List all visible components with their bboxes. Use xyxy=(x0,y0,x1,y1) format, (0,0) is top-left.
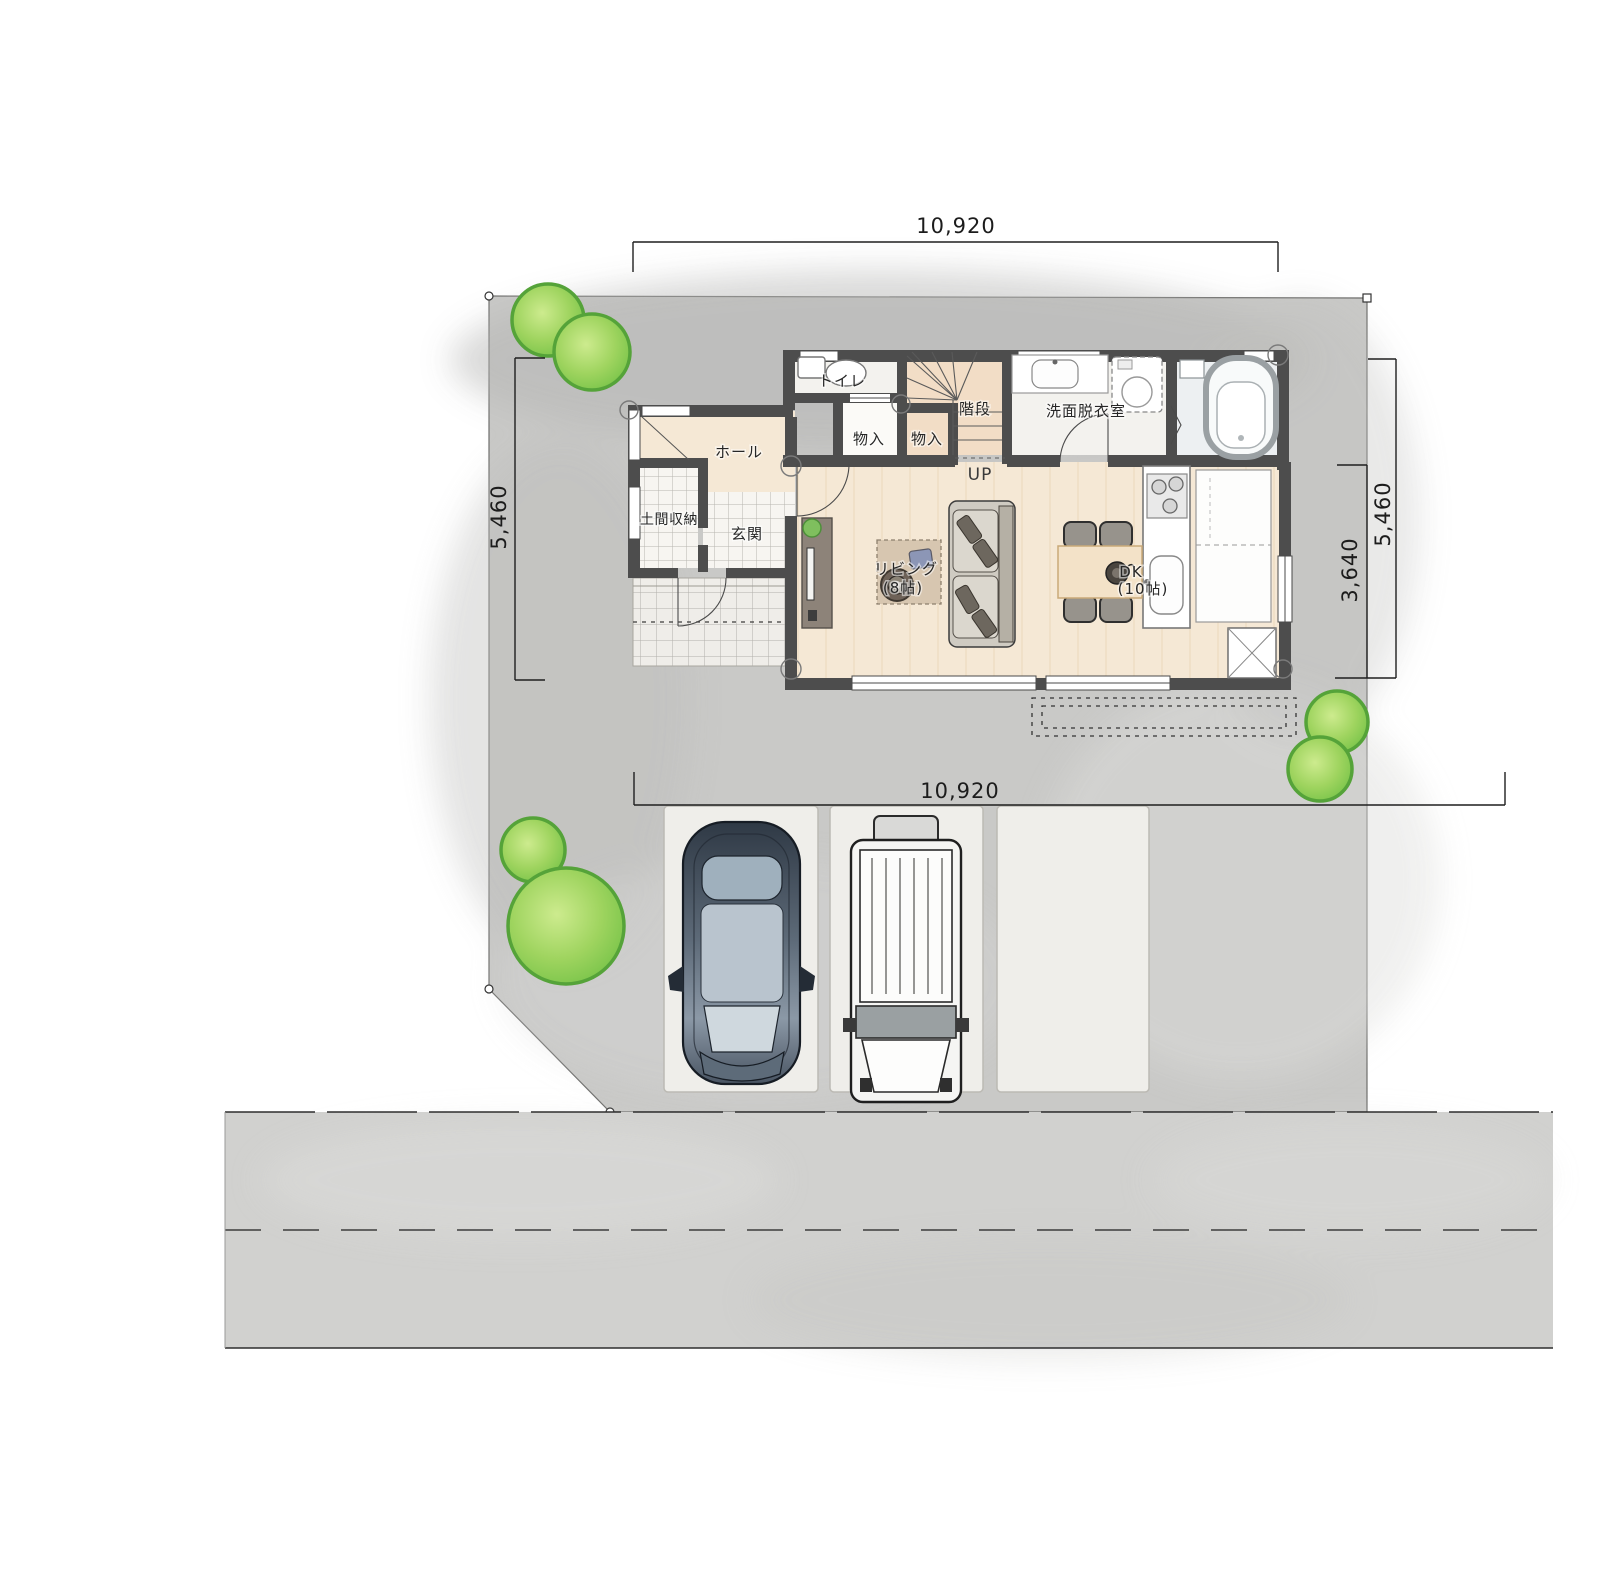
car-suv xyxy=(668,822,815,1084)
sofa xyxy=(949,501,1015,647)
site-plan-drawing: 10,920 10,920 5,460 5,460 3,640 トイレ 階段 物… xyxy=(0,0,1620,1574)
label-toilet: トイレ xyxy=(818,372,866,390)
tv-board xyxy=(802,518,832,628)
dining-chair xyxy=(1100,596,1132,622)
label-dk-size: (10帖) xyxy=(1118,580,1169,598)
dim-left-label: 5,460 xyxy=(487,484,511,549)
label-stairs: 階段 xyxy=(959,400,991,418)
plant-icon xyxy=(803,519,821,537)
site-corner-marker xyxy=(1363,294,1371,302)
kei-truck xyxy=(843,816,969,1102)
vanity-counter xyxy=(1012,355,1108,393)
label-storage1: 物入 xyxy=(853,430,885,448)
kitchen-counter xyxy=(1143,466,1190,628)
dining-chair xyxy=(1100,522,1132,548)
dim-right-inner-label: 3,640 xyxy=(1338,537,1362,602)
label-storage2: 物入 xyxy=(911,430,943,448)
road xyxy=(225,1112,1553,1360)
label-entrance: 玄関 xyxy=(731,525,763,543)
site-corner-marker xyxy=(485,292,493,300)
dining-chair xyxy=(1064,596,1096,622)
dim-top-label: 10,920 xyxy=(916,214,995,238)
tv xyxy=(807,548,814,600)
label-up: UP xyxy=(968,465,993,485)
dim-right-outer-label: 5,460 xyxy=(1371,481,1395,546)
truck-mirror-left xyxy=(843,1018,856,1032)
parking-area xyxy=(664,806,1149,1102)
parking-space-3 xyxy=(997,806,1149,1092)
dim-bottom-label: 10,920 xyxy=(920,779,999,803)
label-washroom: 洗面脱衣室 xyxy=(1046,402,1126,420)
truck-windshield xyxy=(862,1040,950,1092)
truck-bed xyxy=(860,850,952,1002)
bathtub xyxy=(1206,358,1276,457)
label-dk-name: DK xyxy=(1119,563,1143,581)
storage-xbox xyxy=(1228,628,1276,678)
truck-cab-roof xyxy=(856,1006,956,1038)
site-corner-marker xyxy=(485,985,493,993)
dining-chair xyxy=(1064,522,1096,548)
label-living-name: リビング xyxy=(874,560,938,578)
pantry-fridge xyxy=(1196,470,1271,622)
truck-mirror-right xyxy=(956,1018,969,1032)
floor-plan-page: 10,920 10,920 5,460 5,460 3,640 トイレ 階段 物… xyxy=(0,0,1620,1574)
dimension-top xyxy=(633,242,1278,272)
label-hall: ホール xyxy=(715,443,763,461)
label-living-size: (8帖) xyxy=(883,579,923,597)
label-doma-storage: 土間収納 xyxy=(640,512,698,528)
shower-unit xyxy=(1180,360,1204,378)
